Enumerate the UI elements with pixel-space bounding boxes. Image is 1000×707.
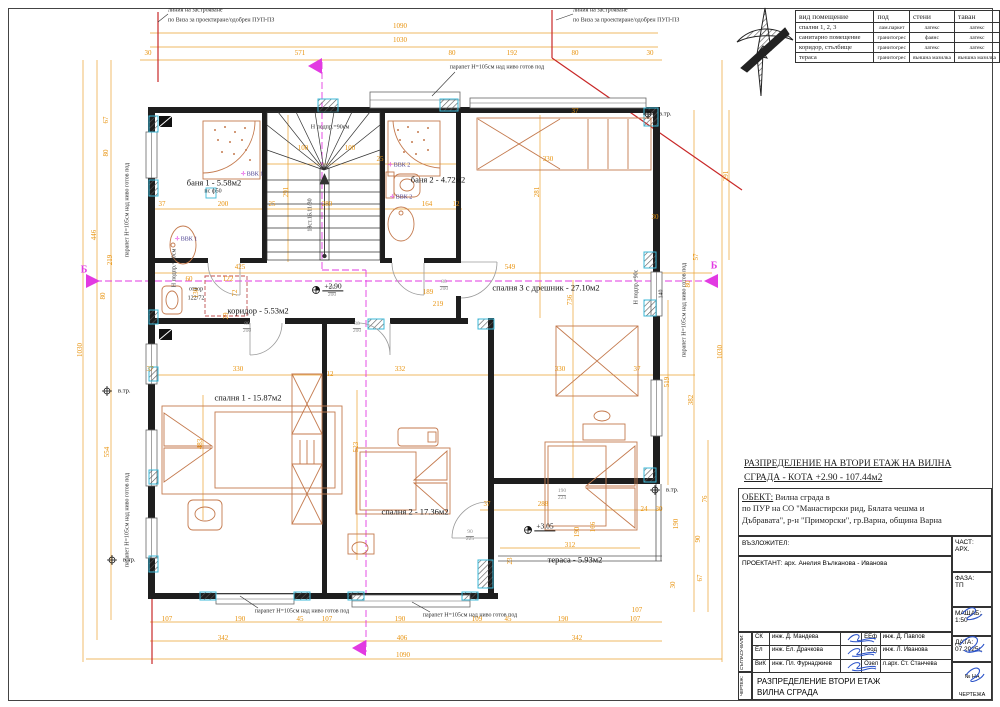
- dimension-label: 45: [297, 616, 304, 624]
- signer-row: Елинж. Ел. Драчкова Геодинж. Л. Иванова: [753, 646, 951, 659]
- vent-pipe-label: в.тр.: [659, 110, 672, 117]
- fixture-label: ✛ВВК 1: [241, 172, 264, 179]
- dimension-label: 30: [652, 214, 659, 222]
- dimension-label: 24: [641, 506, 648, 514]
- dimension-label: 100: [345, 145, 356, 153]
- dimension-label: 554: [104, 447, 112, 458]
- dimension-label: 200: [218, 201, 229, 209]
- section-arrows: [86, 58, 718, 656]
- note-label: парапет H=105см над ниво готов под: [255, 609, 349, 616]
- door-size-label: 80200: [353, 322, 361, 334]
- room-label: коридор - 5.53м2: [227, 306, 288, 315]
- room-label: спалня 1 - 15.87м2: [214, 393, 281, 402]
- door-size-label: 90200: [328, 286, 336, 298]
- date-cell: ДАТА:07.2025г.: [952, 636, 992, 662]
- note-label: линия на застрояване: [573, 8, 628, 15]
- drawing-sheet: 1090103030571801928030678044621980554103…: [0, 0, 1000, 707]
- note-label: Н подпр.=90см: [172, 249, 179, 287]
- room-label: тераса - 5.93м2: [548, 555, 603, 564]
- dimension-label: 67: [697, 575, 705, 582]
- dimension-label: 107: [322, 616, 333, 624]
- architect-logo: [737, 8, 793, 96]
- dimension-label: 291: [723, 171, 731, 182]
- finish-col-walls: стени: [909, 11, 954, 23]
- finish-col-ceiling: таван: [954, 11, 999, 23]
- door-size-label: 80200: [243, 322, 251, 334]
- dimension-label: 382: [688, 395, 696, 406]
- finish-row: коридор, стълбищегранитогрес латекслатек…: [796, 43, 1000, 53]
- signer-row: СКинж. Д. Мандева ЕЕфинж. Д. Павлов: [753, 633, 951, 646]
- note-label: линия на застрояване: [168, 8, 223, 15]
- dimension-label: 37: [147, 366, 154, 374]
- object-box: ОБЕКТ: Вилна сграда в по ПУР на СО "Мана…: [738, 488, 992, 536]
- dimension-label: 12: [453, 201, 460, 209]
- dimension-label: 37: [159, 201, 166, 209]
- dimension-label: 80: [103, 150, 111, 157]
- phase-cell: ФАЗА:ТП: [952, 572, 992, 607]
- dimension-label: 30: [145, 50, 152, 58]
- dimension-label: 107: [632, 607, 643, 615]
- dimension-label: 164: [422, 201, 433, 209]
- dimension-label: 280: [322, 201, 333, 209]
- dimension-label: 190: [558, 616, 569, 624]
- dimension-label: 25: [377, 156, 384, 164]
- room-label: спалня 2 - 17.36м2: [381, 507, 448, 516]
- dimension-label: 1090: [396, 652, 410, 660]
- part-cell: ЧАСТ:АРХ.: [952, 536, 992, 572]
- fixture-label: ✛ВВК 1: [175, 237, 198, 244]
- dimension-label: 80: [572, 50, 579, 58]
- note-label: 140: [659, 290, 666, 299]
- finish-row: терасагранитогрес външна мазилкавъншна м…: [796, 53, 1000, 63]
- side-agree-strip: СЪГЛАСУ-ВАЛИ:: [738, 632, 752, 672]
- dimension-label: 100: [298, 145, 309, 153]
- note-label: парапет H=105см над ниво готов под: [423, 613, 517, 620]
- dimension-label: 192: [507, 50, 518, 58]
- door-size-label: 190224: [558, 489, 566, 501]
- dimension-lines: [83, 33, 729, 662]
- note-label: парапет H=105см над ниво готов под: [125, 163, 132, 257]
- dimension-label: 330: [233, 366, 244, 374]
- section-mark-label: Б: [81, 265, 88, 276]
- dimension-label: 406: [397, 635, 408, 643]
- dimension-label: 291: [283, 187, 291, 198]
- dimension-label: 30: [647, 50, 654, 58]
- note-label: 122/72: [188, 296, 205, 303]
- dimension-label: 80: [100, 293, 108, 300]
- dimension-label: 30: [656, 506, 663, 514]
- sheet-title: РАЗПРЕДЕЛЕНИЕ ВТОРИ ЕТАЖ ВИЛНА СГРАДА: [752, 672, 952, 700]
- designer-row: ПРОЕКТАНТ: арх. Анелия Вълканова - Ивано…: [738, 556, 952, 632]
- dimension-label: 519: [664, 377, 672, 388]
- dimension-label: 342: [218, 635, 229, 643]
- note-label: пс ф50: [204, 189, 221, 196]
- dimension-label: 67: [103, 117, 111, 124]
- note-label: парапет H=105см над ниво готов под: [125, 473, 132, 567]
- dimension-label: 30: [670, 582, 678, 589]
- vent-pipe-label: в.тр.: [123, 556, 136, 563]
- dimension-label: 23: [507, 558, 515, 565]
- door-size-label: 90225: [466, 530, 474, 542]
- level-label: +3.05: [534, 522, 555, 531]
- signers-table: СКинж. Д. Мандева ЕЕфинж. Д. Павлов Елин…: [752, 632, 952, 673]
- dimension-label: 425: [235, 264, 246, 272]
- dimension-label: 219: [433, 301, 444, 309]
- fixture-label: ✛ВВК 2: [388, 163, 411, 170]
- note-label: 18ст.16.11/30: [308, 198, 315, 231]
- signer-row: ВиКинж. Пл. Фурнаджиев Озелл.арх. Ст. Ст…: [753, 660, 951, 673]
- axis-lines: [95, 62, 710, 652]
- dimension-label: 189: [423, 289, 434, 297]
- dimension-label: 60: [186, 276, 193, 284]
- fixture-label: ✛ВВК 2: [390, 195, 413, 202]
- dimension-label: 736: [567, 295, 575, 306]
- room-label: баня 2 - 4.72м2: [411, 175, 466, 184]
- section-mark-label: Б: [711, 261, 718, 272]
- dimension-label: 190: [574, 527, 582, 538]
- dimension-label: 107: [162, 616, 173, 624]
- note-label: парапет H=105см над ниво готов под: [682, 263, 689, 357]
- dimension-label: 190: [395, 616, 406, 624]
- dimension-label: 25: [269, 201, 276, 209]
- dimension-label: 166: [590, 522, 598, 533]
- dimension-label: 342: [572, 635, 583, 643]
- dimension-label: 107: [630, 616, 641, 624]
- dimension-label: 12: [327, 371, 334, 379]
- dimension-label: 332: [395, 366, 406, 374]
- vent-pipe-label: в.тр.: [666, 486, 679, 493]
- finish-table: вид помещение под стени таван спални 1, …: [795, 10, 1000, 63]
- dimension-label: 90: [695, 536, 703, 543]
- dimension-label: 330: [555, 366, 566, 374]
- vent-pipe-label: в.тр.: [118, 387, 131, 394]
- drawing-title: РАЗПРЕДЕЛЕНИЕ НА ВТОРИ ЕТАЖ НА ВИЛНА СГР…: [744, 458, 990, 486]
- note-label: Н подпр.=90с: [634, 270, 641, 305]
- dimension-label: 57: [693, 254, 701, 261]
- dimension-label: 281: [534, 187, 542, 198]
- dimension-label: 571: [295, 50, 306, 58]
- dimension-label: 523: [353, 442, 361, 453]
- note-label: отвор: [189, 287, 203, 294]
- dimension-label: 80: [449, 50, 456, 58]
- dimension-label: 37: [484, 501, 491, 509]
- dimension-label: 446: [91, 230, 99, 241]
- door-size-label: 80200: [440, 280, 448, 292]
- dimension-label: 288: [538, 501, 549, 509]
- side-drawing-strip: ЧЕРТЕЖ:: [738, 672, 752, 700]
- dimension-label: 1030: [717, 345, 725, 359]
- dimension-label: 219: [107, 255, 115, 266]
- dimension-label: 76: [702, 496, 710, 503]
- note-label: по Виза за проектиране/одобрен ПУП-ПЗ: [573, 18, 679, 25]
- room-label: баня 1 - 5.58м2: [187, 178, 242, 187]
- dimension-label: 1030: [77, 343, 85, 357]
- dimension-label: 190: [673, 519, 681, 530]
- dimension-label: 330: [543, 156, 554, 164]
- finish-col-room: вид помещение: [796, 11, 874, 23]
- dimension-label: 72: [232, 290, 240, 297]
- room-label: спалня 3 с дрешник - 27.10м2: [492, 283, 599, 292]
- dimension-label: 37: [572, 108, 579, 116]
- client-row: ВЪЗЛОЖИТЕЛ:: [738, 536, 952, 556]
- note-label: парапет H=105см над ниво готов под: [450, 65, 544, 72]
- dimension-label: 549: [505, 264, 516, 272]
- dimension-label: 37: [634, 366, 641, 374]
- dimension-label: 1090: [393, 23, 407, 31]
- sheet-number-cell: № НА ЧЕРТЕЖА 3/10: [952, 662, 992, 700]
- finish-row: спални 1, 2, 3лам.паркет латекслатекс: [796, 23, 1000, 33]
- finish-col-floor: под: [874, 11, 909, 23]
- dimension-label: 483: [197, 439, 205, 450]
- dimension-label: 312: [565, 542, 576, 550]
- dimension-label: 190: [235, 616, 246, 624]
- dimension-label: 1030: [393, 37, 407, 45]
- scale-cell: МАЩАБ:1:50: [952, 607, 992, 636]
- dimension-label: 122: [223, 276, 234, 284]
- note-label: Н подпр.=90см: [311, 125, 349, 132]
- note-label: по Виза за проектиране/одобрен ПУП-ПЗ: [168, 18, 274, 25]
- finish-row: санитарно помещениегранитогрес фаянслате…: [796, 33, 1000, 43]
